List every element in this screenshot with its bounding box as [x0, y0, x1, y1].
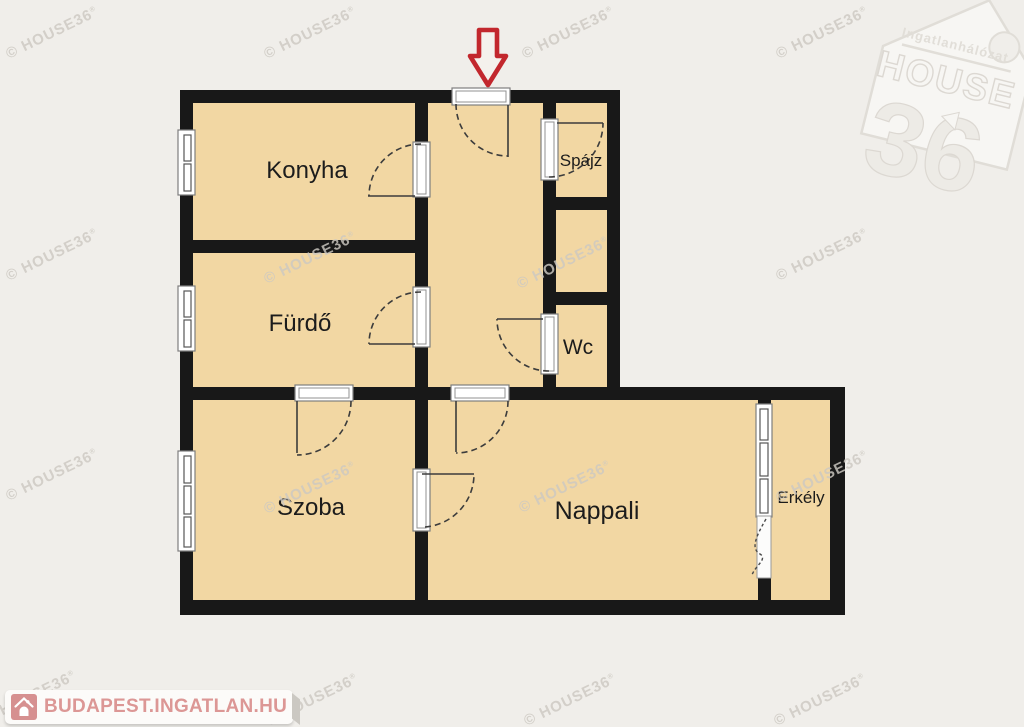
window-szoba: [178, 451, 195, 551]
door-konyha: [413, 142, 430, 197]
house36-logo: Ingatlanhálózat HOUSE 36: [847, 0, 1024, 225]
footer-banner: BUDAPEST.INGATLAN.HU: [5, 690, 293, 724]
door-furdo-szoba: [295, 385, 353, 401]
room-label-spajz: Spájz: [560, 151, 603, 170]
floorplan-drawing: Ingatlanhálózat HOUSE 36: [0, 0, 1024, 727]
room-label-konyha: Konyha: [266, 157, 348, 184]
window-erkely: [756, 404, 772, 517]
room-label-erkely: Erkély: [777, 488, 825, 507]
door-szoba-nappali: [413, 469, 430, 531]
window-furdo: [178, 286, 195, 351]
window-konyha: [178, 130, 195, 195]
door-entrance: [452, 88, 510, 105]
room-label-nappali: Nappali: [555, 497, 640, 525]
ingatlan-house-icon: [11, 694, 37, 720]
door-hall-nappali: [451, 385, 509, 401]
entrance-arrow-icon: [470, 30, 506, 85]
room-label-furdo: Fürdő: [269, 310, 332, 337]
door-wc: [541, 314, 558, 374]
footer-site-text: BUDAPEST.INGATLAN.HU: [44, 696, 287, 718]
floorplan-page: Ingatlanhálózat HOUSE 36: [0, 0, 1024, 727]
room-label-wc: Wc: [563, 336, 593, 359]
room-label-szoba: Szoba: [277, 494, 346, 521]
door-spajz: [541, 119, 558, 180]
door-furdo: [413, 287, 430, 347]
